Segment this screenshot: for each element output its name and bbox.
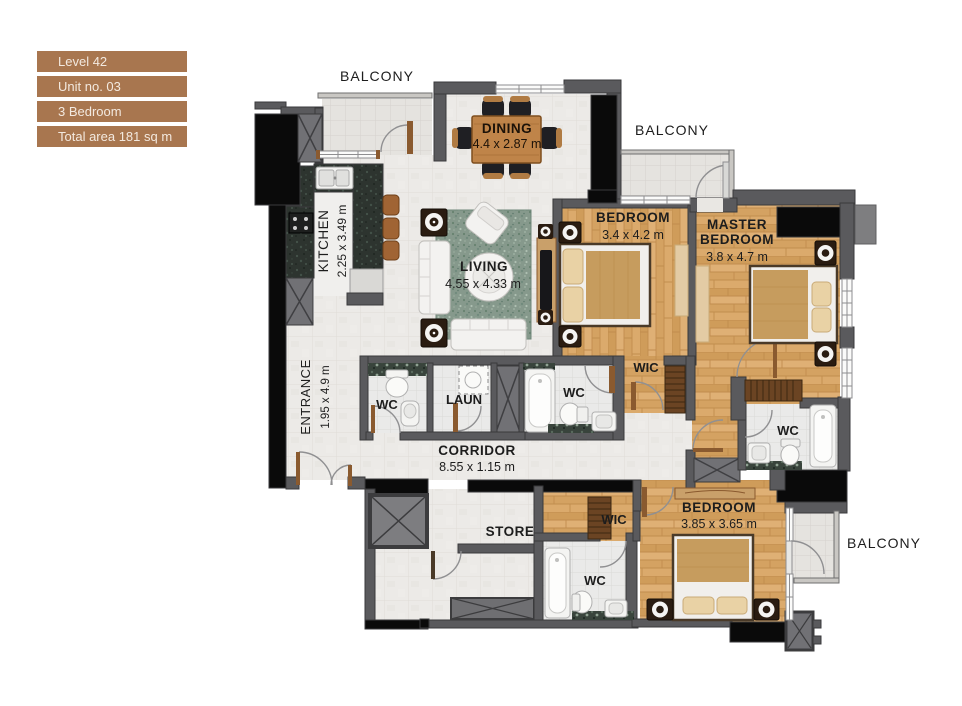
svg-text:LIVING: LIVING [460,259,508,274]
svg-text:WIC: WIC [633,360,659,375]
svg-text:BALCONY: BALCONY [847,535,921,551]
svg-text:4.55 x 4.33 m: 4.55 x 4.33 m [445,277,521,291]
svg-text:3.8 x 4.7 m: 3.8 x 4.7 m [706,250,768,264]
svg-text:2.25 x 3.49 m: 2.25 x 3.49 m [335,205,349,278]
svg-text:DINING: DINING [482,121,532,136]
svg-text:BALCONY: BALCONY [635,122,709,138]
svg-text:STORE: STORE [486,524,535,539]
svg-text:WC: WC [376,397,398,412]
svg-text:WC: WC [584,573,606,588]
svg-text:WC: WC [777,423,799,438]
svg-text:BEDROOM: BEDROOM [682,500,756,515]
svg-text:1.95 x 4.9 m: 1.95 x 4.9 m [320,365,332,428]
svg-text:WC: WC [563,385,585,400]
svg-text:CORRIDOR: CORRIDOR [438,443,516,458]
svg-text:LAUN: LAUN [446,392,482,407]
svg-text:4.4 x 2.87 m: 4.4 x 2.87 m [473,137,542,151]
svg-text:3.85 x 3.65 m: 3.85 x 3.65 m [681,517,757,531]
svg-text:KITCHEN: KITCHEN [316,210,331,273]
svg-text:BEDROOM: BEDROOM [596,210,670,225]
svg-text:MASTER: MASTER [707,217,767,232]
svg-text:ENTRANCE: ENTRANCE [298,359,313,435]
svg-text:3.4 x 4.2 m: 3.4 x 4.2 m [602,228,664,242]
svg-text:BALCONY: BALCONY [340,68,414,84]
svg-text:WIC: WIC [601,512,627,527]
svg-text:8.55 x 1.15 m: 8.55 x 1.15 m [439,460,515,474]
svg-text:BEDROOM: BEDROOM [700,232,774,247]
